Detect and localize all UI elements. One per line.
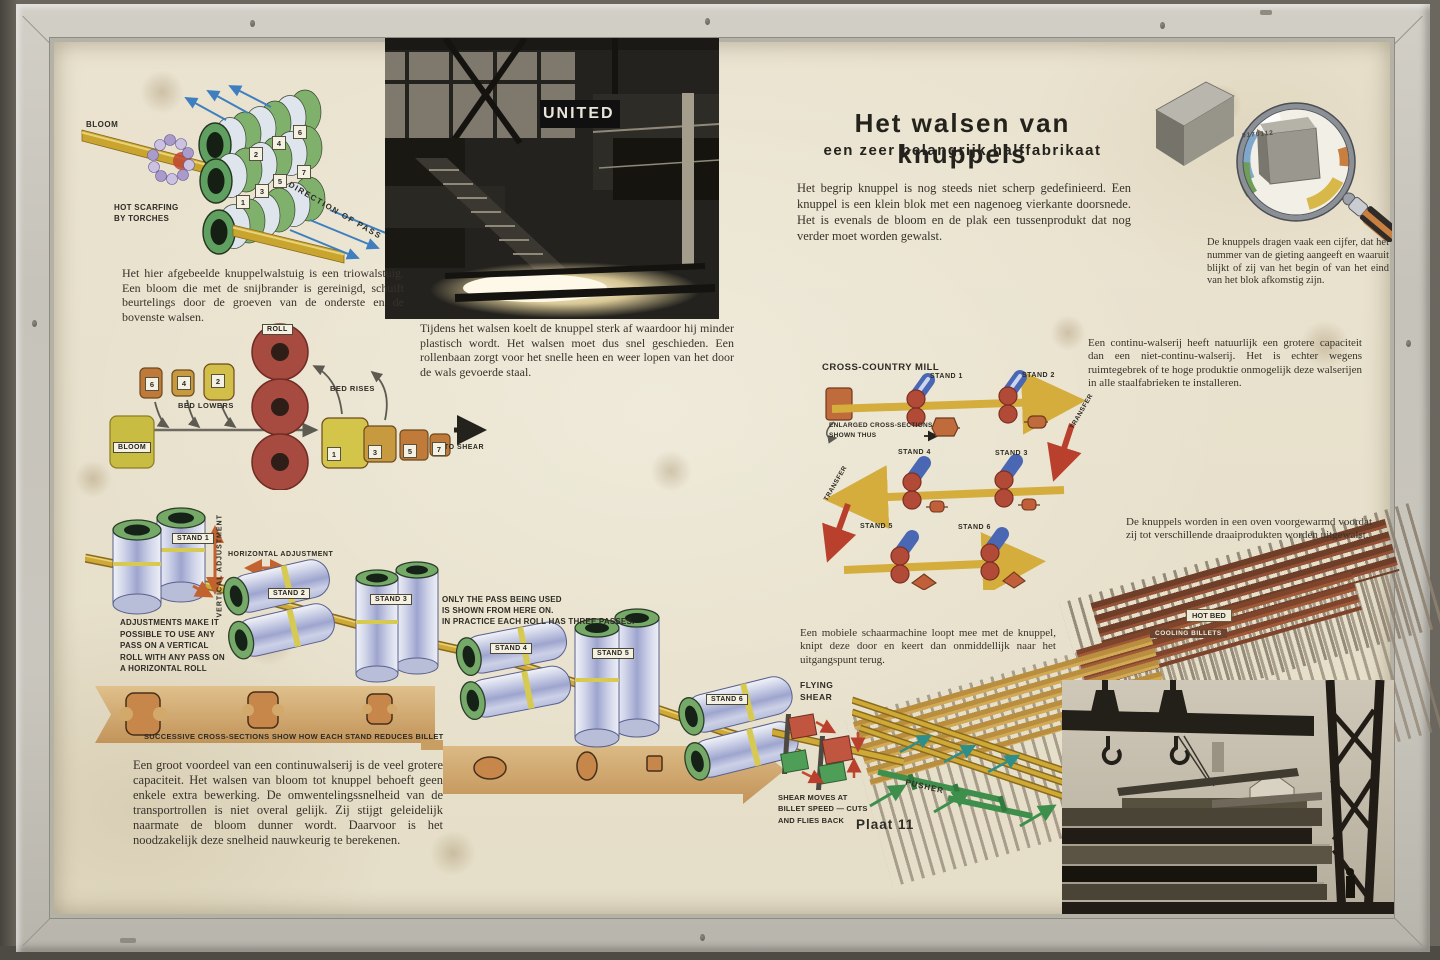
pass-chip: 1	[327, 447, 341, 461]
lower-pass-pieces	[322, 418, 450, 468]
stain	[1050, 315, 1086, 351]
cc-stand5-label: STAND 5	[860, 523, 893, 530]
frame-nail	[1406, 340, 1411, 347]
pass-chip: 2	[211, 374, 225, 388]
frame-wear-chip	[1260, 10, 1272, 15]
frame-nail	[1160, 22, 1165, 29]
stand3-label: STAND 3	[370, 594, 412, 605]
pass-chip: 7	[432, 442, 446, 456]
trio-mill-diagram	[78, 82, 404, 274]
cc-stand-row2	[903, 461, 1040, 512]
cross-country-mill-diagram	[812, 352, 1106, 590]
pass-number-chip: 2	[249, 147, 263, 161]
stand2-label: STAND 2	[268, 588, 310, 599]
vertical-adjustment-label: VERTICAL ADJUSTMENT	[217, 514, 224, 618]
shear-moves-note: SHEAR MOVES AT BILLET SPEED — CUTS AND F…	[778, 792, 868, 826]
continuous-advantage-note: Een groot voordeel van een continuwalser…	[133, 758, 443, 848]
bloom-block-label: BLOOM	[113, 442, 151, 453]
band-caption: SUCCESSIVE CROSS-SECTIONS SHOW HOW EACH …	[144, 732, 444, 741]
pass-chip: 4	[177, 376, 191, 390]
pass-number-chip: 4	[272, 136, 286, 150]
stand4-label: STAND 4	[490, 643, 532, 654]
magnifier-handle	[1339, 188, 1392, 242]
page-subtitle: een zeer belangrijk halffabrikaat	[790, 142, 1135, 159]
frame-nail	[250, 20, 255, 27]
page-title: Het walsen van knuppels	[790, 108, 1135, 170]
flying-shear-label: FLYING SHEAR	[800, 680, 833, 704]
cc-stand4-label: STAND 4	[898, 449, 931, 456]
cross-country-title: CROSS-COUNTRY MILL	[822, 362, 939, 373]
pass-shown-note: ONLY THE PASS BEING USED IS SHOWN FROM H…	[442, 594, 634, 628]
frame-wear-chip	[120, 938, 136, 943]
hot-bed-label: HOT BED	[1186, 609, 1232, 622]
adjustments-note: ADJUSTMENTS MAKE IT POSSIBLE TO USE ANY …	[120, 617, 225, 675]
pass-number-chip: 3	[255, 184, 269, 198]
three-high-rolls	[252, 324, 308, 490]
pass-chip: 5	[403, 444, 417, 458]
cc-stand2-label: STAND 2	[1022, 372, 1055, 379]
billet-number-caption: De knuppels dragen vaak een cijfer, dat …	[1207, 237, 1389, 288]
mill-interior-photo: UNITED	[385, 38, 719, 319]
billet-magnifier-illustration	[1148, 70, 1392, 242]
bed-rises-arrows	[314, 366, 387, 420]
bloom-label: BLOOM	[86, 120, 118, 129]
stand5-label: STAND 5	[592, 648, 634, 659]
mobile-shear-note: Een mobiele schaarmachine loopt mee met …	[800, 627, 1056, 667]
stand5-rolls	[575, 609, 659, 747]
hot-scarfing-label: HOT SCARFING BY TORCHES	[114, 203, 179, 225]
framed-wall-chart: UNITED	[0, 0, 1440, 960]
plate-number: Plaat 11	[856, 817, 914, 832]
pass-chip: 3	[368, 445, 382, 459]
enlarged-cross-sections-note: ENLARGED CROSS-SECTIONS SHOWN THUS	[829, 421, 933, 441]
stand1-rolls	[113, 508, 205, 614]
cc-stand6-label: STAND 6	[958, 524, 991, 531]
stand4-rolls	[453, 619, 573, 721]
billet-yard-photo	[1062, 680, 1394, 914]
oven-note: De knuppels worden in een oven voorgewar…	[1126, 516, 1372, 543]
frame-nail	[705, 18, 710, 25]
stand2-rolls	[220, 556, 338, 661]
roll-label: ROLL	[262, 324, 293, 335]
united-sign: UNITED	[543, 105, 615, 123]
frame-nail	[32, 320, 37, 327]
bed-rises-label: BED RISES	[330, 384, 375, 393]
pass-number-chip: 1	[236, 195, 250, 209]
pass-chip: 6	[145, 377, 159, 391]
cooling-billets-label: COOLING BILLETS	[1150, 629, 1227, 638]
trio-caption: Het hier afgebeelde knuppelwalstuig is e…	[122, 266, 404, 325]
pass-number-chip: 7	[297, 165, 311, 179]
stand3-rolls	[356, 562, 438, 682]
stain	[650, 450, 692, 492]
continuous-mill-note: Een continu-walserij heeft natuurlijk ee…	[1088, 337, 1362, 391]
intro-paragraph: Het begrip knuppel is nog steeds niet sc…	[797, 180, 1131, 244]
to-shear-label: TO SHEAR	[444, 444, 484, 451]
pass-number-chip: 6	[293, 125, 307, 139]
cc-stand3-label: STAND 3	[995, 450, 1028, 457]
horizontal-adjustment-label: HORIZONTAL ADJUSTMENT	[228, 551, 333, 558]
bed-lowers-label: BED LOWERS	[178, 401, 234, 410]
frame-nail	[700, 934, 705, 941]
pass-number-chip: 5	[273, 174, 287, 188]
stand1-label: STAND 1	[172, 533, 214, 544]
cc-stand1-label: STAND 1	[930, 373, 963, 380]
stand6-label: STAND 6	[706, 694, 748, 705]
mill-photo-caption: Tijdens het walsen koelt de knuppel ster…	[420, 321, 734, 380]
